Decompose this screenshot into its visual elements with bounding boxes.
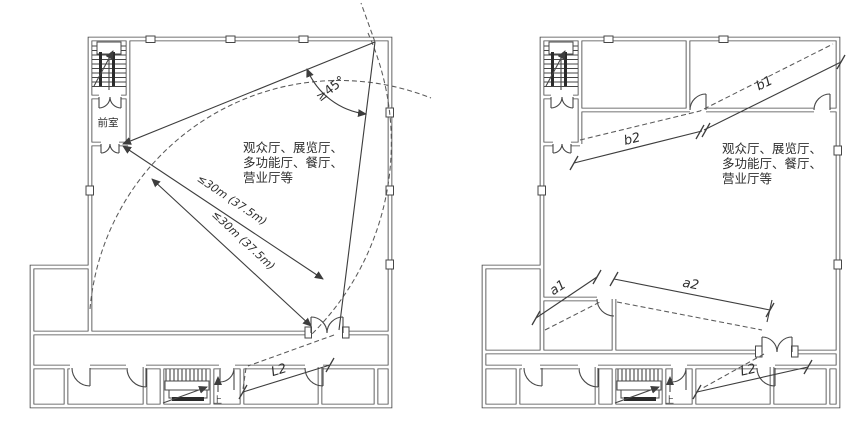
hall-label-line1: 观众厅、展览厅、 (243, 140, 343, 155)
hall-label-line1: 观众厅、展览厅、 (722, 141, 822, 156)
l2-label: L2 (739, 362, 757, 380)
right-doors (524, 94, 830, 390)
path-b-dashed (580, 44, 833, 140)
dim-b1-line (704, 62, 841, 130)
path-a2-dashed (617, 302, 762, 330)
left-top-stairwell (92, 42, 126, 90)
l2-label: L2 (269, 361, 288, 380)
stair-up-label: 上 (665, 395, 674, 406)
window-notch (538, 186, 546, 195)
hall-label-line2: 多功能厅、餐厅、 (243, 155, 343, 170)
right-top-stairwell (544, 42, 578, 90)
left-texts: 前室 ≥45° ≤30m (37.5m) ≤30m (37.5m) 观众厅、展览… (98, 72, 348, 272)
right-texts: 观众厅、展览厅、 多功能厅、餐厅、 营业厅等 (722, 141, 822, 186)
right-floor-plan: 上 (484, 36, 845, 406)
left-floor-plan: 上 L2 (32, 3, 431, 406)
window-notch (86, 186, 94, 195)
evacuation-distance-diagram: 上 L2 (0, 0, 865, 440)
corridor-path-dashed (248, 335, 334, 366)
window-notch (386, 260, 394, 269)
arc-30m-from-exit (90, 80, 431, 309)
window-notch (719, 36, 728, 43)
window-notch (146, 36, 155, 43)
b1-label: b1 (754, 73, 775, 94)
window-notch (604, 36, 613, 43)
a1-label: a1 (547, 277, 569, 299)
window-notch (226, 36, 235, 43)
a2-label: a2 (681, 276, 700, 294)
right-walls (484, 36, 842, 406)
arc-30m-from-vestibule (312, 33, 391, 334)
hall-label-line3: 营业厅等 (243, 170, 293, 185)
window-notch (834, 146, 842, 155)
hall-label-line2: 多功能厅、餐厅、 (722, 156, 822, 171)
window-notch (299, 36, 308, 43)
b2-label: b2 (622, 130, 642, 149)
left-walls (32, 36, 394, 406)
stair-up-label: 上 (213, 395, 222, 406)
vestibule-label: 前室 (98, 116, 119, 129)
hall-label-line3: 营业厅等 (722, 171, 772, 186)
figure-canvas: 上 L2 (0, 0, 865, 440)
sight-line-to-vestibule (123, 42, 375, 144)
window-notch (834, 260, 842, 269)
